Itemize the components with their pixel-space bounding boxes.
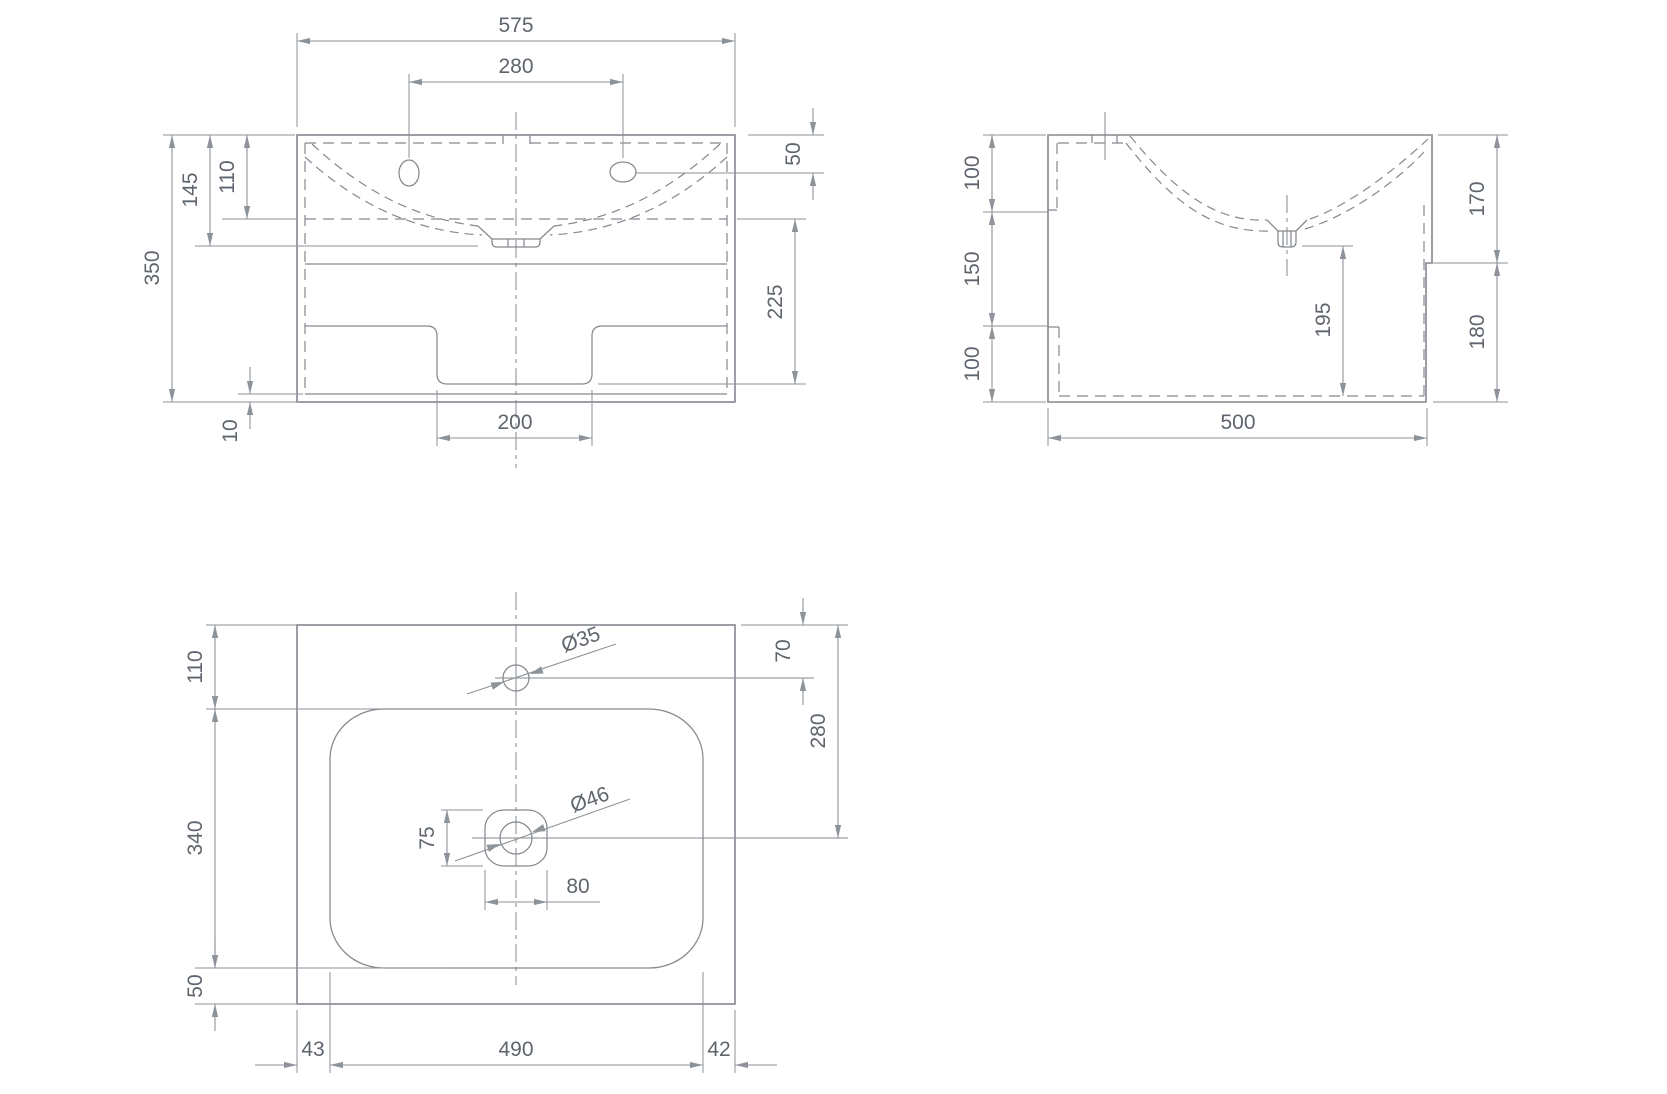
dim-label-plan-faucet-from-edge: 70 xyxy=(772,639,795,662)
dim-side-overall-depth: 500 xyxy=(1048,408,1427,446)
dim-side-drain-clearance: 195 xyxy=(1302,246,1353,396)
dim-front-lower-section: 225 xyxy=(737,219,806,384)
dim-label-side-back-middle: 150 xyxy=(961,251,984,286)
dim-label-plan-left-margin: 43 xyxy=(301,1038,324,1061)
dim-label-plan-drain-cutout-width: 80 xyxy=(566,875,589,898)
dim-label-side-back-top: 100 xyxy=(961,155,984,190)
dim-label-plan-basin-length: 340 xyxy=(184,820,207,855)
dim-label-plan-top-margin: 110 xyxy=(184,650,207,683)
washbasin-dimension-drawing: 575 280 145 110 350 50 xyxy=(0,0,1667,1094)
plan-left-extensions xyxy=(195,625,450,1004)
dim-label-plan-basin-width: 490 xyxy=(498,1038,533,1061)
dim-plan-faucet-from-edge: 70 xyxy=(741,598,848,705)
dim-label-side-front-lower: 180 xyxy=(1466,314,1489,349)
dim-plan-faucet-diameter: Ø35 xyxy=(467,622,616,694)
dim-plan-basin-length: 340 xyxy=(184,709,215,968)
dim-side-front-levels: 170 180 xyxy=(1432,135,1508,402)
dim-label-front-hole-from-top: 50 xyxy=(782,142,805,165)
plan-view: Ø35 Ø46 110 340 50 xyxy=(184,592,848,1073)
front-basin-curve-left-outer xyxy=(312,144,478,226)
dim-side-back-levels: 100 150 100 xyxy=(961,135,1048,402)
dim-label-plan-drain-diameter: Ø46 xyxy=(567,782,612,817)
dim-label-side-front-upper: 170 xyxy=(1466,181,1489,216)
dim-label-side-overall-depth: 500 xyxy=(1220,411,1255,434)
dim-plan-drain-cutout-width: 80 xyxy=(485,870,600,910)
dim-label-front-basin-depth: 145 xyxy=(179,172,202,207)
dim-label-plan-faucet-diameter: Ø35 xyxy=(558,622,603,657)
dim-label-plan-bottom-margin: 50 xyxy=(184,974,207,997)
dim-front-cutout-width: 200 xyxy=(437,390,592,446)
dim-plan-drain-from-edge: 280 xyxy=(807,625,838,838)
plan-faucet-crosshair xyxy=(495,651,814,705)
front-basin-curve-left-inner xyxy=(305,157,482,235)
dim-label-side-drain-clearance: 195 xyxy=(1312,302,1335,337)
front-basin-curve-right-outer xyxy=(554,144,720,226)
side-inner-walls-hidden xyxy=(1059,198,1424,396)
dim-label-plan-drain-from-edge: 280 xyxy=(807,713,830,748)
dim-front-hole-from-top: 50 xyxy=(636,108,824,200)
dim-label-front-hole-spacing: 280 xyxy=(498,55,533,78)
front-faucet-hole-left xyxy=(399,160,419,186)
dim-plan-drain-diameter: Ø46 xyxy=(455,782,630,861)
dim-label-front-base-thickness: 10 xyxy=(219,419,242,442)
front-basin-curve-right-inner xyxy=(550,157,727,235)
dim-front-deck-level: 110 xyxy=(216,135,247,219)
dim-label-front-deck-level: 110 xyxy=(216,160,239,193)
dim-label-side-back-bottom: 100 xyxy=(961,346,984,381)
dim-label-front-overall-width: 575 xyxy=(498,14,533,37)
technical-drawing-sheet: 575 280 145 110 350 50 xyxy=(0,0,1667,1094)
front-view: 575 280 145 110 350 50 xyxy=(141,14,824,468)
dim-label-plan-right-margin: 42 xyxy=(707,1038,730,1061)
dim-plan-top-margin: 110 xyxy=(184,625,215,709)
side-view: 100 150 100 170 180 195 500 xyxy=(961,112,1508,446)
front-faucet-hole-right xyxy=(610,162,636,182)
dim-front-overall-height: 350 xyxy=(141,135,172,402)
side-basin-curve-front-outer xyxy=(1310,139,1428,219)
side-basin-curve-back-inner xyxy=(1126,143,1273,231)
dim-label-front-overall-height: 350 xyxy=(141,250,164,285)
dim-plan-bottom-chain: 43 490 42 xyxy=(255,972,777,1073)
dim-plan-bottom-margin: 50 xyxy=(184,941,215,1031)
dim-label-plan-drain-cutout-height: 75 xyxy=(416,826,439,849)
dim-label-front-lower-section: 225 xyxy=(764,284,787,319)
dim-front-basin-depth: 145 xyxy=(179,135,210,246)
side-basin-curve-back-outer xyxy=(1130,136,1267,220)
dim-label-front-cutout-width: 200 xyxy=(497,411,532,434)
side-body-outline xyxy=(1048,135,1432,402)
dim-front-base-thickness: 10 xyxy=(219,367,250,443)
side-back-recess-upper xyxy=(1048,143,1126,210)
